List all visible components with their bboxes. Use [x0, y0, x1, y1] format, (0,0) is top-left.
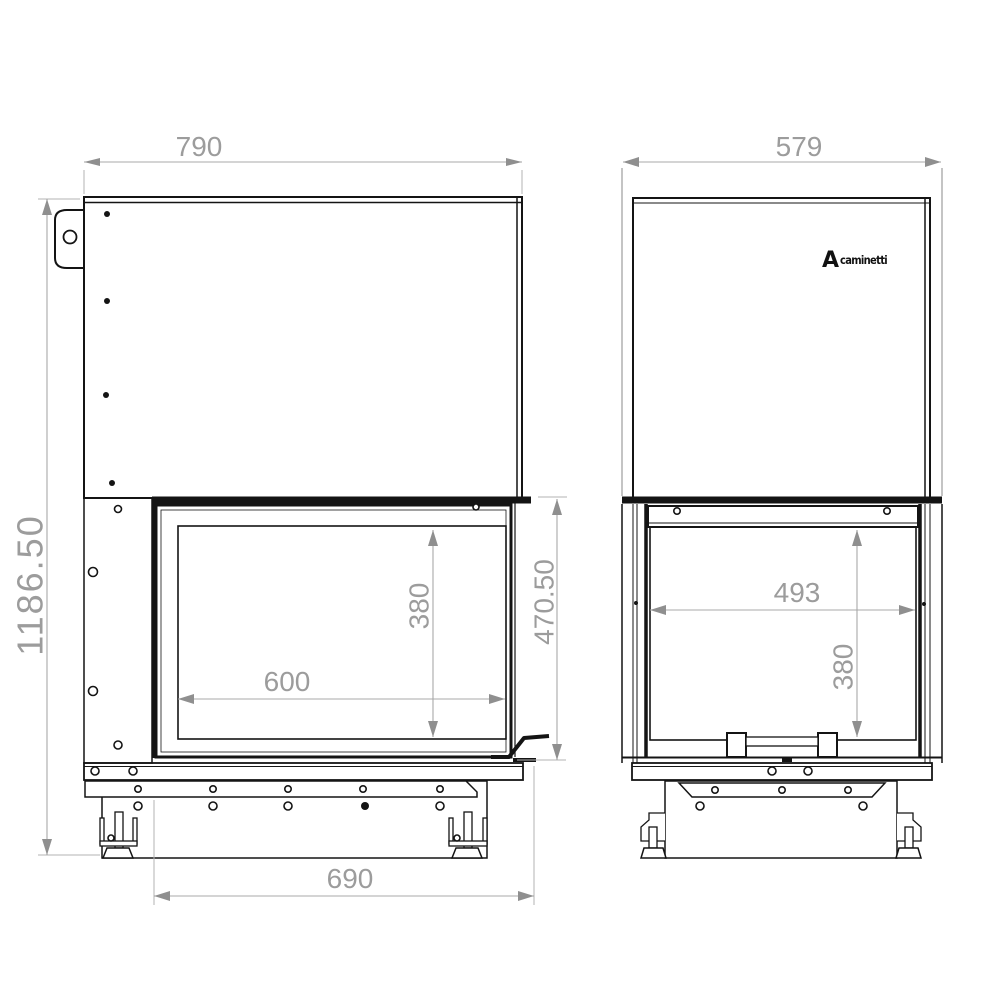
dim-door-opening-width: 600	[178, 666, 505, 704]
front-upper-panel	[84, 197, 522, 498]
dim-side-width-label: 579	[776, 131, 823, 162]
dim-overall-height-label: 1186.50	[10, 514, 51, 655]
screw-holes-front-column	[89, 506, 123, 750]
dim-side-opening-width-label: 493	[774, 577, 821, 608]
dim-side-opening-width: 493	[650, 577, 915, 615]
front-view	[55, 197, 549, 858]
dim-overall-height: 1186.50	[10, 199, 101, 855]
side-right-foot	[896, 813, 921, 858]
dim-side-opening-height-label: 380	[828, 644, 859, 691]
brand-letter: A	[822, 248, 839, 273]
dim-door-opening-height-label: 380	[404, 583, 435, 630]
brand-logo: A caminetti	[822, 248, 887, 273]
front-left-foot	[100, 812, 137, 858]
screw-holes-front-upper	[103, 211, 115, 486]
dim-front-width: 790	[84, 131, 522, 194]
front-left-column	[84, 498, 152, 763]
side-upper-panel	[633, 198, 930, 498]
front-bottom-plate	[84, 763, 523, 780]
dim-firebox-front-height-label: 470.50	[529, 559, 560, 645]
side-columns	[622, 504, 942, 763]
dim-door-opening-height: 380	[404, 530, 439, 737]
front-plinth-panel	[85, 781, 477, 797]
tab-hole	[64, 231, 77, 244]
side-top-bar	[648, 506, 918, 527]
dim-side-opening-height: 380	[828, 530, 863, 737]
brand-wordmark: caminetti	[840, 253, 887, 267]
side-opening	[650, 527, 916, 740]
technical-drawing-page: A caminetti	[0, 0, 1000, 1000]
door-corner-screw	[473, 504, 479, 510]
technical-drawing: A caminetti	[0, 0, 1000, 1000]
side-left-foot	[641, 813, 666, 858]
dim-front-width-label: 790	[176, 131, 223, 162]
dim-firebox-front-height: 470.50	[517, 497, 567, 760]
front-door-glass	[178, 526, 506, 739]
side-view: A caminetti	[622, 168, 942, 858]
dim-side-width: 579	[623, 131, 941, 167]
dim-base-width-label: 690	[327, 863, 374, 894]
front-door-frame	[156, 505, 511, 757]
side-handle-bracket	[727, 733, 837, 757]
side-bottom-plate	[632, 763, 932, 780]
front-right-foot	[449, 812, 487, 858]
dim-door-opening-width-label: 600	[264, 666, 311, 697]
